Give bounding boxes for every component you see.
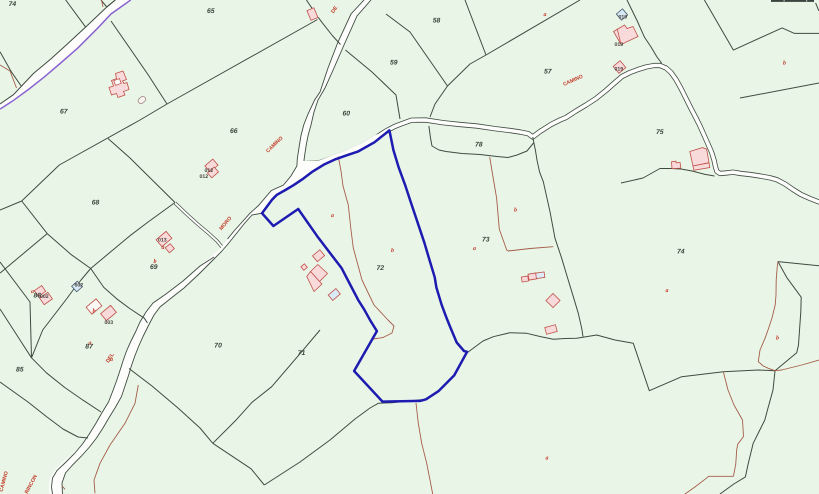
svg-text:68: 68 — [92, 200, 100, 207]
svg-text:002: 002 — [40, 294, 49, 300]
svg-text:019: 019 — [615, 67, 624, 73]
svg-text:65: 65 — [207, 8, 215, 15]
svg-text:58: 58 — [433, 18, 441, 25]
svg-text:69: 69 — [150, 264, 158, 271]
svg-text:003: 003 — [105, 320, 114, 326]
svg-text:a: a — [473, 246, 476, 252]
svg-text:57: 57 — [544, 69, 553, 76]
svg-text:59: 59 — [390, 60, 398, 67]
svg-text:019: 019 — [615, 42, 624, 48]
svg-text:a: a — [666, 288, 669, 294]
svg-text:74: 74 — [9, 1, 17, 8]
svg-text:72: 72 — [377, 265, 385, 272]
svg-text:85: 85 — [16, 367, 24, 374]
svg-text:73: 73 — [482, 237, 490, 244]
svg-text:012: 012 — [200, 174, 209, 180]
svg-text:013: 013 — [158, 238, 167, 244]
svg-text:602: 602 — [75, 283, 84, 289]
svg-text:66: 66 — [230, 128, 238, 135]
svg-text:019: 019 — [619, 15, 628, 21]
svg-text:a: a — [546, 456, 549, 462]
svg-text:a: a — [544, 12, 547, 18]
svg-text:b: b — [783, 60, 786, 67]
svg-text:75: 75 — [656, 129, 664, 136]
svg-text:b: b — [391, 247, 394, 254]
svg-text:a: a — [162, 245, 165, 251]
svg-text:71: 71 — [298, 350, 306, 357]
svg-text:a: a — [31, 289, 34, 295]
svg-text:a: a — [331, 213, 334, 219]
svg-text:70: 70 — [214, 343, 222, 350]
svg-text:b: b — [514, 207, 517, 214]
svg-text:74: 74 — [677, 249, 685, 256]
svg-text:a: a — [89, 341, 92, 347]
svg-text:60: 60 — [343, 111, 351, 118]
svg-text:b: b — [776, 335, 779, 342]
svg-text:b: b — [154, 258, 157, 265]
svg-text:78: 78 — [475, 141, 483, 148]
svg-text:67: 67 — [60, 109, 69, 116]
svg-text:b: b — [93, 308, 96, 315]
